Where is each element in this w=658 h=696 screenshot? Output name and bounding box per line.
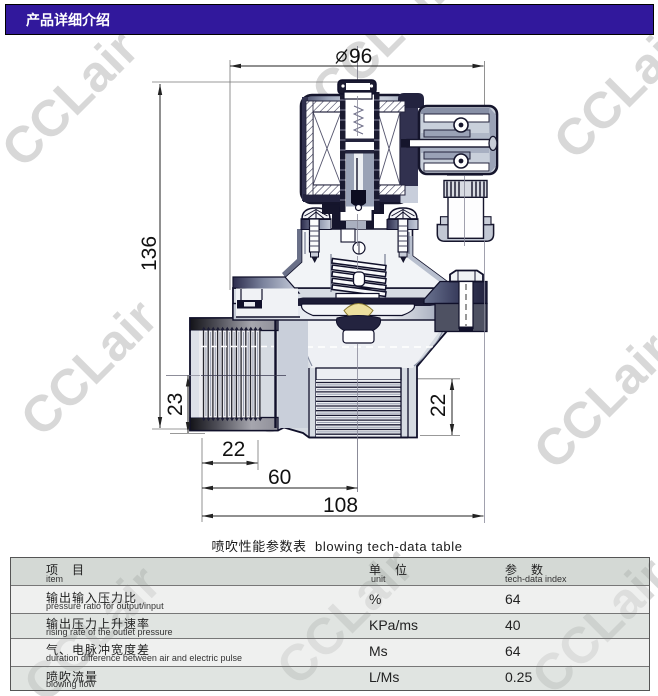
svg-text:60: 60 <box>268 466 291 489</box>
svg-text:96: 96 <box>349 45 372 68</box>
svg-text:CCLair: CCLair <box>9 288 168 447</box>
svg-text:CCLair: CCLair <box>0 19 149 178</box>
svg-text:23: 23 <box>164 393 187 416</box>
svg-text:CCLair: CCLair <box>522 321 658 480</box>
svg-text:22: 22 <box>222 438 245 461</box>
svg-text:136: 136 <box>138 236 161 271</box>
svg-text:22: 22 <box>427 394 450 417</box>
svg-text:108: 108 <box>323 494 358 517</box>
